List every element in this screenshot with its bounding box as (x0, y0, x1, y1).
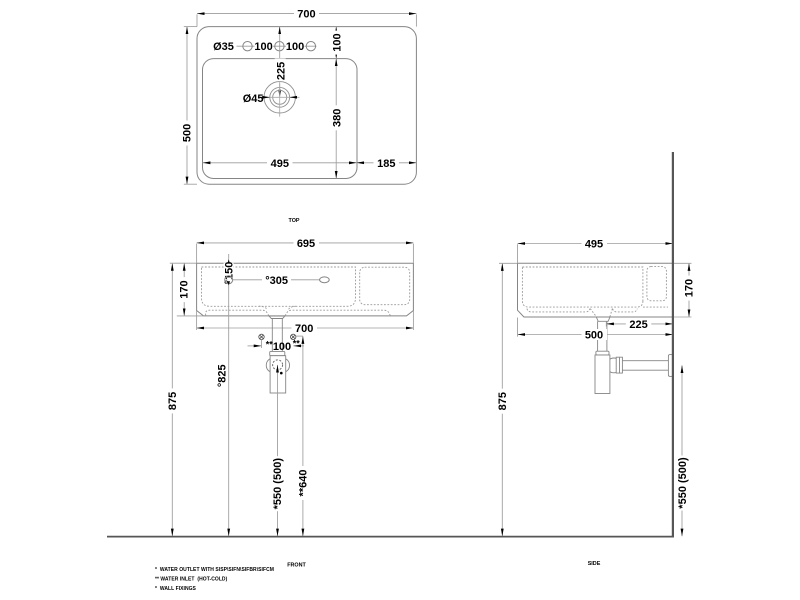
svg-text:Ø45: Ø45 (243, 93, 264, 105)
svg-text:875: 875 (497, 392, 509, 410)
svg-text:225: 225 (275, 62, 287, 80)
svg-text:500: 500 (182, 124, 194, 142)
svg-text:100: 100 (254, 41, 272, 53)
svg-text:*550 (500): *550 (500) (272, 458, 284, 510)
svg-text:495: 495 (271, 158, 289, 170)
svg-text:100: 100 (286, 41, 304, 53)
svg-text:SIDE: SIDE (588, 561, 601, 567)
svg-text:* WALL FIXINGS: * WALL FIXINGS (155, 586, 197, 592)
svg-text:695: 695 (297, 238, 315, 250)
svg-text:°825: °825 (216, 364, 228, 387)
svg-text:170: 170 (179, 280, 191, 298)
svg-text:225: 225 (629, 319, 647, 331)
svg-text:** WATER INLET (HOT-COLD): ** WATER INLET (HOT-COLD) (155, 577, 228, 583)
svg-text:500: 500 (585, 330, 603, 342)
svg-text:*550 (500): *550 (500) (677, 457, 689, 509)
svg-text:Ø35: Ø35 (213, 41, 234, 53)
svg-text:700: 700 (295, 323, 313, 335)
svg-text:170: 170 (683, 279, 695, 297)
svg-text:* WATER OUTLET WITH SISP\SIFN: * WATER OUTLET WITH SISP\SIFN\SIFBR\SIFC… (155, 567, 274, 573)
svg-text:495: 495 (585, 239, 603, 251)
svg-text:TOP: TOP (289, 218, 300, 224)
svg-text:**: ** (293, 338, 301, 348)
svg-text:°150: °150 (224, 262, 236, 285)
svg-text:875: 875 (167, 392, 179, 410)
svg-text:FRONT: FRONT (287, 563, 306, 569)
svg-text:100: 100 (273, 341, 291, 353)
svg-text:185: 185 (377, 158, 395, 170)
svg-text:**640: **640 (298, 470, 310, 497)
svg-text:100: 100 (331, 33, 343, 51)
svg-text:700: 700 (297, 9, 315, 21)
svg-text:°305: °305 (265, 275, 288, 287)
svg-text:380: 380 (331, 109, 343, 127)
